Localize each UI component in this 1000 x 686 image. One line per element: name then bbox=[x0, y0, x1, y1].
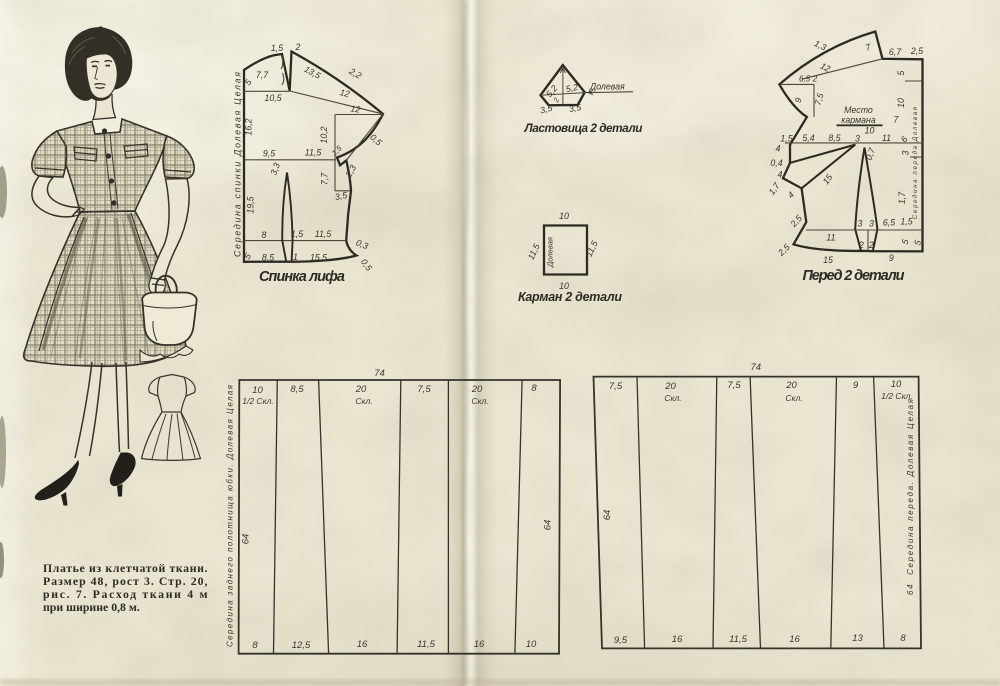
svg-text:11: 11 bbox=[882, 133, 891, 143]
svg-text:6,7: 6,7 bbox=[889, 47, 902, 57]
svg-text:3: 3 bbox=[869, 219, 874, 229]
svg-text:Перед 2 детали: Перед 2 детали bbox=[803, 268, 905, 284]
svg-text:16: 16 bbox=[789, 634, 800, 645]
svg-text:1,7: 1,7 bbox=[897, 191, 907, 204]
svg-text:3,5: 3,5 bbox=[334, 190, 348, 202]
svg-text:10,5: 10,5 bbox=[264, 93, 281, 103]
svg-text:74: 74 bbox=[374, 368, 385, 379]
svg-text:10: 10 bbox=[526, 639, 537, 650]
svg-text:Скл.: Скл. bbox=[785, 393, 802, 403]
svg-text:Скл.: Скл. bbox=[471, 396, 488, 406]
svg-text:15: 15 bbox=[823, 255, 833, 265]
svg-text:кармана: кармана bbox=[841, 115, 876, 125]
svg-text:16: 16 bbox=[474, 639, 485, 650]
svg-text:16: 16 bbox=[357, 639, 368, 650]
svg-text:7,5: 7,5 bbox=[727, 380, 741, 391]
svg-text:0,4: 0,4 bbox=[770, 158, 782, 168]
svg-text:Карман 2 детали: Карман 2 детали bbox=[518, 290, 622, 304]
svg-text:1: 1 bbox=[293, 252, 298, 262]
svg-text:15,5: 15,5 bbox=[310, 253, 327, 263]
svg-text:1,5: 1,5 bbox=[271, 43, 283, 53]
svg-text:20: 20 bbox=[471, 384, 483, 395]
svg-text:64 Середина переда. Долевая Ц: 64 Середина переда. Долевая Целая bbox=[906, 398, 915, 595]
svg-text:Долевая: Долевая bbox=[546, 237, 555, 268]
svg-text:8: 8 bbox=[900, 633, 906, 644]
svg-text:10: 10 bbox=[891, 379, 902, 390]
svg-text:1,5: 1,5 bbox=[780, 134, 792, 144]
svg-text:20: 20 bbox=[785, 380, 797, 391]
svg-text:74: 74 bbox=[751, 362, 762, 373]
svg-text:рис. 7. Расход ткани 4 м: рис. 7. Расход ткани 4 м bbox=[43, 587, 208, 601]
svg-text:64: 64 bbox=[241, 534, 252, 545]
svg-text:5: 5 bbox=[896, 70, 906, 75]
svg-text:Размер 48, рост 3. Стр. 20,: Размер 48, рост 3. Стр. 20, bbox=[43, 574, 208, 588]
svg-text:64: 64 bbox=[543, 520, 554, 531]
svg-text:10: 10 bbox=[559, 211, 569, 221]
svg-text:20: 20 bbox=[664, 381, 676, 392]
svg-text:Место: Место bbox=[844, 105, 873, 115]
svg-text:Скл.: Скл. bbox=[664, 393, 681, 403]
svg-text:Середина переда Долевая: Середина переда Долевая bbox=[913, 106, 919, 219]
svg-text:10: 10 bbox=[252, 385, 263, 396]
svg-text:2: 2 bbox=[858, 240, 864, 250]
svg-text:4: 4 bbox=[778, 170, 783, 180]
svg-text:8,5: 8,5 bbox=[262, 253, 274, 263]
svg-text:7,5: 7,5 bbox=[417, 384, 431, 395]
svg-text:Платье из клетчатой ткани.: Платье из клетчатой ткани. bbox=[43, 561, 208, 575]
svg-text:7,7: 7,7 bbox=[320, 172, 330, 185]
svg-text:16,2: 16,2 bbox=[244, 118, 254, 135]
svg-text:10,2: 10,2 bbox=[319, 126, 329, 143]
svg-text:9,5: 9,5 bbox=[614, 635, 628, 646]
svg-text:7,7: 7,7 bbox=[256, 70, 269, 80]
svg-text:11,5: 11,5 bbox=[315, 229, 332, 239]
svg-text:64: 64 bbox=[602, 510, 613, 521]
svg-text:19,5: 19,5 bbox=[246, 196, 256, 213]
svg-text:10: 10 bbox=[896, 98, 906, 108]
svg-text:11,5: 11,5 bbox=[729, 634, 748, 645]
svg-text:при ширине 0,8 м.: при ширине 0,8 м. bbox=[43, 600, 140, 614]
svg-text:12,5: 12,5 bbox=[292, 640, 311, 651]
svg-text:5,4: 5,4 bbox=[802, 133, 814, 143]
svg-text:Долевая: Долевая bbox=[589, 82, 625, 92]
svg-text:1/2 Скл.: 1/2 Скл. bbox=[242, 396, 274, 406]
svg-text:9: 9 bbox=[889, 253, 894, 263]
svg-text:2,5: 2,5 bbox=[910, 46, 923, 56]
svg-text:Спинка лифа: Спинка лифа bbox=[259, 269, 345, 285]
svg-text:10: 10 bbox=[865, 126, 875, 136]
svg-text:1,5: 1,5 bbox=[900, 217, 912, 227]
svg-text:Середина спинки Долевая Целая: Середина спинки Долевая Целая bbox=[233, 72, 243, 257]
svg-text:8,5: 8,5 bbox=[290, 384, 304, 395]
svg-text:6,5: 6,5 bbox=[799, 75, 811, 84]
svg-text:6,5: 6,5 bbox=[883, 218, 895, 228]
svg-text:9,5: 9,5 bbox=[263, 149, 275, 159]
svg-text:Ластовица 2 детали: Ластовица 2 детали bbox=[524, 121, 643, 135]
svg-text:4: 4 bbox=[776, 144, 781, 154]
svg-text:8: 8 bbox=[531, 383, 537, 394]
svg-text:11: 11 bbox=[826, 233, 835, 243]
svg-text:13: 13 bbox=[852, 633, 863, 644]
svg-text:12: 12 bbox=[350, 103, 361, 114]
svg-text:2: 2 bbox=[812, 75, 818, 84]
svg-text:8: 8 bbox=[262, 230, 267, 240]
svg-text:Скл.: Скл. bbox=[355, 396, 372, 406]
svg-text:3: 3 bbox=[858, 219, 863, 229]
svg-text:3,5: 3,5 bbox=[568, 102, 582, 114]
svg-text:3: 3 bbox=[855, 134, 860, 144]
svg-text:20: 20 bbox=[355, 384, 367, 395]
svg-text:1,5: 1,5 bbox=[291, 229, 303, 239]
svg-text:11,5: 11,5 bbox=[305, 148, 322, 158]
svg-text:11,5: 11,5 bbox=[417, 639, 436, 650]
svg-text:7,5: 7,5 bbox=[609, 381, 623, 392]
svg-text:16: 16 bbox=[672, 634, 683, 645]
svg-text:8,5: 8,5 bbox=[828, 133, 840, 143]
svg-text:2: 2 bbox=[868, 240, 874, 250]
svg-text:3: 3 bbox=[901, 150, 911, 155]
svg-text:8: 8 bbox=[252, 640, 258, 651]
svg-text:9: 9 bbox=[853, 380, 859, 391]
svg-text:2: 2 bbox=[295, 42, 301, 52]
svg-text:Середина заднего полотнища юбк: Середина заднего полотнища юбки. Долевая… bbox=[226, 384, 235, 647]
